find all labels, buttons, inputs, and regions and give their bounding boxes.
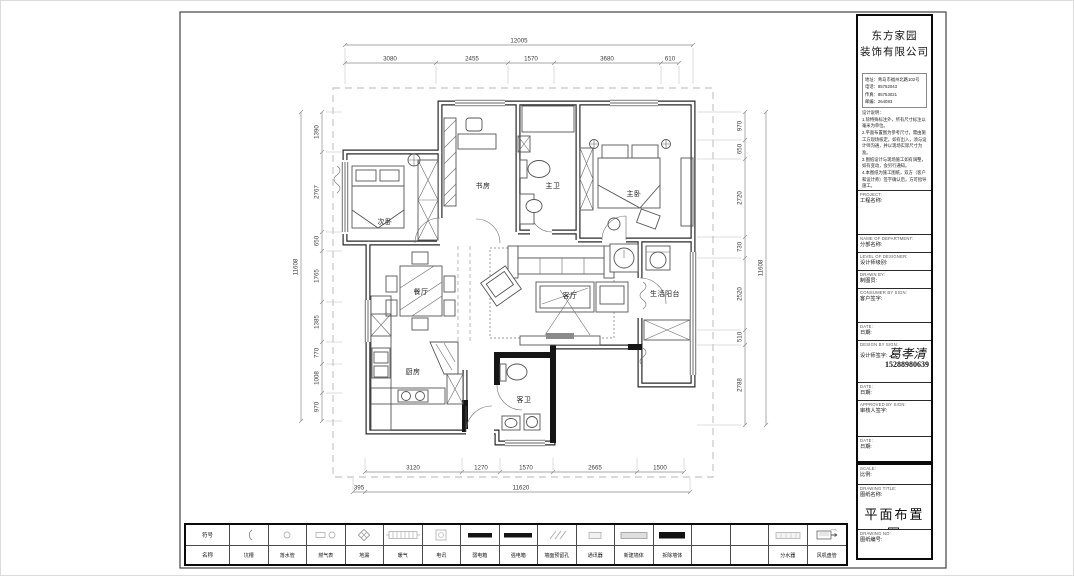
svg-text:395: 395 bbox=[354, 485, 365, 492]
legend-col-fan-coil: 风机盘管 bbox=[808, 525, 847, 564]
notes-title: 设计说明： bbox=[862, 110, 927, 117]
company-address: 地址：青岛市福州北路102号 bbox=[865, 76, 924, 83]
svg-text:730: 730 bbox=[737, 241, 744, 252]
legend-col-wall-hole: 墙面预留孔 bbox=[538, 525, 577, 564]
drawing-page: { "company": { "name_line1": "东方家园", "na… bbox=[0, 0, 1074, 576]
empty-symbol bbox=[692, 525, 730, 546]
drawing-title: 平面布置图 bbox=[860, 499, 929, 529]
company-phone: 电话：85752043 bbox=[865, 83, 924, 90]
weak-power-box-symbol bbox=[461, 525, 499, 546]
svg-text:510: 510 bbox=[737, 331, 744, 342]
svg-text:970: 970 bbox=[737, 120, 744, 131]
designer-level-label-cn: 设计师级别: bbox=[860, 260, 929, 268]
svg-text:3120: 3120 bbox=[406, 465, 420, 472]
company-zip: 邮编：264083 bbox=[865, 98, 924, 105]
master-bedroom-furniture bbox=[580, 140, 693, 231]
drawing-title-label-cn: 图纸名称: bbox=[860, 492, 929, 500]
beam-dashed-lines bbox=[458, 246, 470, 344]
legend-name: 暖气 bbox=[384, 546, 422, 564]
legend-name: 新建墙体 bbox=[615, 546, 653, 564]
svg-text:1270: 1270 bbox=[474, 465, 488, 472]
project-label-cn: 工程名称: bbox=[860, 198, 929, 206]
designer-phone: 15288980639 bbox=[860, 360, 929, 370]
legend-name bbox=[692, 546, 730, 564]
drawn-by-label-cn: 制图员: bbox=[860, 278, 929, 286]
svg-text:2665: 2665 bbox=[588, 465, 602, 472]
designer-level-field: LEVEL OF DESIGNER: 设计师级别: bbox=[858, 252, 931, 270]
company-fax: 传真：85753021 bbox=[865, 91, 924, 98]
telecom-symbol bbox=[423, 525, 461, 546]
svg-text:2767: 2767 bbox=[314, 185, 321, 199]
svg-text:1385: 1385 bbox=[314, 315, 321, 329]
dimension-bottom: 3120 1270 1570 2665 1500 395 11620 bbox=[351, 458, 692, 494]
svg-text:1008: 1008 bbox=[314, 371, 321, 385]
approver-sign-field: APPROVED BY SIGN: 审核人签字: bbox=[858, 400, 931, 436]
legend-name bbox=[731, 546, 769, 564]
legend-col-empty-1 bbox=[692, 525, 731, 564]
legend-col-gas-meter: 燃气表 bbox=[307, 525, 346, 564]
room-label-master-bedroom: 主卧 bbox=[627, 189, 642, 198]
svg-text:2720: 2720 bbox=[737, 191, 744, 205]
master-bath-fixtures bbox=[518, 106, 574, 224]
svg-text:610: 610 bbox=[665, 56, 676, 63]
svg-text:11620: 11620 bbox=[513, 485, 530, 492]
legend-name: 强电箱 bbox=[500, 546, 538, 564]
date-field-2: DATE: 日期: bbox=[858, 382, 931, 400]
designer-signature: 葛孝清 bbox=[888, 348, 926, 361]
project-field: PROJECT: 工程名称: bbox=[858, 190, 931, 234]
approver-sign-label-cn: 审核人签字: bbox=[860, 408, 929, 416]
svg-text:3680: 3680 bbox=[600, 56, 614, 63]
drawing-title-field: DRAWING TITLE: 图纸名称: 平面布置图 bbox=[858, 484, 931, 529]
study-furniture bbox=[444, 118, 496, 206]
gas-meter-symbol bbox=[307, 525, 345, 546]
design-notes-section: 设计说明： 1.除特殊标注外，所有尺寸标注以毫米为单位。 2.平面布置图为参考尺… bbox=[858, 108, 931, 190]
title-block-drawing-info: SCALE: 比例: DRAWING TITLE: 图纸名称: 平面布置图 DR… bbox=[856, 463, 933, 560]
legend-name: 通讯器 bbox=[577, 546, 615, 564]
date-label-cn: 日期: bbox=[860, 330, 929, 338]
legend-col-empty-2 bbox=[731, 525, 770, 564]
svg-text:2788: 2788 bbox=[737, 378, 744, 392]
svg-text:1500: 1500 bbox=[653, 465, 667, 472]
svg-text:1570: 1570 bbox=[524, 56, 538, 63]
legend-header-col: 符号 名称 bbox=[186, 525, 230, 564]
legend-name: 坑槽 bbox=[230, 546, 268, 564]
fan-coil-symbol bbox=[808, 525, 847, 546]
notes-item: 3.图纸设计与现场施工如有调整，如有变动，会另行通知。 bbox=[862, 157, 927, 170]
new-wall-symbol bbox=[615, 525, 653, 546]
legend-strip: 符号 名称 坑槽 落水管 燃气表 地漏 暖气 电讯 bbox=[184, 523, 848, 566]
room-label-kitchen: 厨房 bbox=[406, 367, 421, 376]
legend-header-name: 名称 bbox=[186, 546, 229, 564]
legend-name: 燃气表 bbox=[307, 546, 345, 564]
water-manifold-symbol bbox=[769, 525, 807, 546]
downpipe-symbol bbox=[269, 525, 307, 546]
room-label-dining: 餐厅 bbox=[414, 287, 429, 296]
legend-name: 电讯 bbox=[423, 546, 461, 564]
room-label-living: 客厅 bbox=[563, 291, 578, 300]
legend-name: 落水管 bbox=[269, 546, 307, 564]
room-label-guest-bath: 客卫 bbox=[517, 395, 532, 404]
scale-field: SCALE: 比例: bbox=[858, 465, 931, 484]
customer-sign-field: CONSUMER BY SIGN: 客户签字: bbox=[858, 288, 931, 322]
title-block-main: 东方家园 装饰有限公司 地址：青岛市福州北路102号 电话：85752043 传… bbox=[856, 14, 933, 463]
legend-col-floor-drain: 地漏 bbox=[346, 525, 385, 564]
living-furniture bbox=[481, 244, 638, 345]
svg-text:970: 970 bbox=[314, 401, 321, 412]
room-label-bedroom2: 次卧 bbox=[378, 217, 393, 226]
svg-text:1765: 1765 bbox=[314, 269, 321, 283]
company-section: 东方家园 装饰有限公司 bbox=[858, 16, 931, 70]
drawn-by-field: DRAWN BY: 制图员: bbox=[858, 270, 931, 288]
svg-text:650: 650 bbox=[314, 235, 321, 246]
date-field-3: DATE: 日期: bbox=[858, 436, 931, 461]
legend-name: 墙面预留孔 bbox=[538, 546, 576, 564]
legend-col-radiator: 暖气 bbox=[384, 525, 423, 564]
company-name-line1: 东方家园 bbox=[860, 17, 929, 45]
floor-drain-symbol bbox=[346, 525, 384, 546]
demolished-wall-symbol bbox=[654, 525, 692, 546]
notes-item: 1.除特殊标注外，所有尺寸标注以毫米为单位。 bbox=[862, 117, 927, 130]
dimension-left: 1390 2767 650 1765 1385 770 1008 970 116… bbox=[293, 110, 343, 423]
legend-col-downpipe: 落水管 bbox=[269, 525, 308, 564]
title-block: 东方家园 装饰有限公司 地址：青岛市福州北路102号 电话：85752043 传… bbox=[856, 14, 933, 560]
legend-col-demolished-wall: 拆除墙体 bbox=[654, 525, 693, 564]
company-contact-section: 地址：青岛市福州北路102号 电话：85752043 传真：85753021 邮… bbox=[858, 70, 931, 108]
legend-name: 弱电箱 bbox=[461, 546, 499, 564]
svg-text:2520: 2520 bbox=[737, 287, 744, 301]
date-label-cn: 日期: bbox=[860, 390, 929, 398]
notes-item: 2.平面布置图为参考尺寸，需由施工方现场核定，如有出入，须与设计师沟通，并以现场… bbox=[862, 130, 927, 157]
svg-text:2455: 2455 bbox=[465, 56, 479, 63]
legend-name: 风机盘管 bbox=[808, 546, 847, 564]
room-label-study: 书房 bbox=[476, 181, 491, 190]
legend-name: 拆除墙体 bbox=[654, 546, 692, 564]
legend-name: 地漏 bbox=[346, 546, 384, 564]
drawing-no-label-cn: 图纸编号: bbox=[860, 537, 929, 545]
legend-col-telecom: 电讯 bbox=[423, 525, 462, 564]
legend-header-symbol: 符号 bbox=[186, 525, 229, 546]
department-field: NAME OF DEPARTMENT: 分部名称: bbox=[858, 234, 931, 252]
designer-sign-field: DESIGN BY SIGN: 设计师签字: 葛孝清 15288980639 bbox=[858, 340, 931, 382]
legend-col-pit: 坑槽 bbox=[230, 525, 269, 564]
svg-text:11608: 11608 bbox=[293, 258, 300, 275]
svg-text:12005: 12005 bbox=[510, 38, 528, 45]
designer-sign-label-cn: 设计师签字: bbox=[860, 353, 887, 361]
customer-sign-label-cn: 客户签字: bbox=[860, 296, 929, 304]
legend-col-strong-power-box: 强电箱 bbox=[500, 525, 539, 564]
legend-name: 分水器 bbox=[769, 546, 807, 564]
date-field-1: DATE: 日期: bbox=[858, 322, 931, 340]
strong-power-box-symbol bbox=[500, 525, 538, 546]
svg-text:770: 770 bbox=[314, 347, 321, 358]
room-label-master-bath: 主卫 bbox=[546, 181, 561, 190]
legend-col-communicator: 通讯器 bbox=[577, 525, 616, 564]
svg-text:650: 650 bbox=[737, 143, 744, 154]
svg-text:11608: 11608 bbox=[758, 259, 765, 276]
legend-col-weak-power-box: 弱电箱 bbox=[461, 525, 500, 564]
department-label-cn: 分部名称: bbox=[860, 242, 929, 250]
wall-hole-symbol bbox=[538, 525, 576, 546]
pit-symbol bbox=[230, 525, 268, 546]
legend-col-new-wall: 新建墙体 bbox=[615, 525, 654, 564]
date-label-cn: 日期: bbox=[860, 444, 929, 452]
communicator-symbol bbox=[577, 525, 615, 546]
empty-symbol bbox=[731, 525, 769, 546]
company-name-line2: 装饰有限公司 bbox=[860, 45, 929, 61]
legend-col-water-manifold: 分水器 bbox=[769, 525, 808, 564]
radiator-symbol bbox=[384, 525, 422, 546]
room-label-balcony: 生活阳台 bbox=[650, 289, 680, 298]
scale-label-cn: 比例: bbox=[860, 472, 929, 480]
bedroom2-furniture bbox=[352, 160, 438, 240]
notes-item: 4.本图纸为施工图纸，双方（客户和设计师）签字确认后，方可指导施工。 bbox=[862, 170, 927, 190]
dimension-top: 12005 3080 2455 1570 3680 610 bbox=[343, 38, 695, 85]
svg-text:1570: 1570 bbox=[519, 465, 533, 472]
svg-text:1390: 1390 bbox=[314, 125, 321, 139]
drawing-no-field: DRAWING NO: 图纸编号: bbox=[858, 529, 931, 556]
svg-text:3080: 3080 bbox=[383, 56, 397, 63]
dimension-right: 970 650 2720 730 2520 510 2788 11608 bbox=[697, 110, 768, 427]
